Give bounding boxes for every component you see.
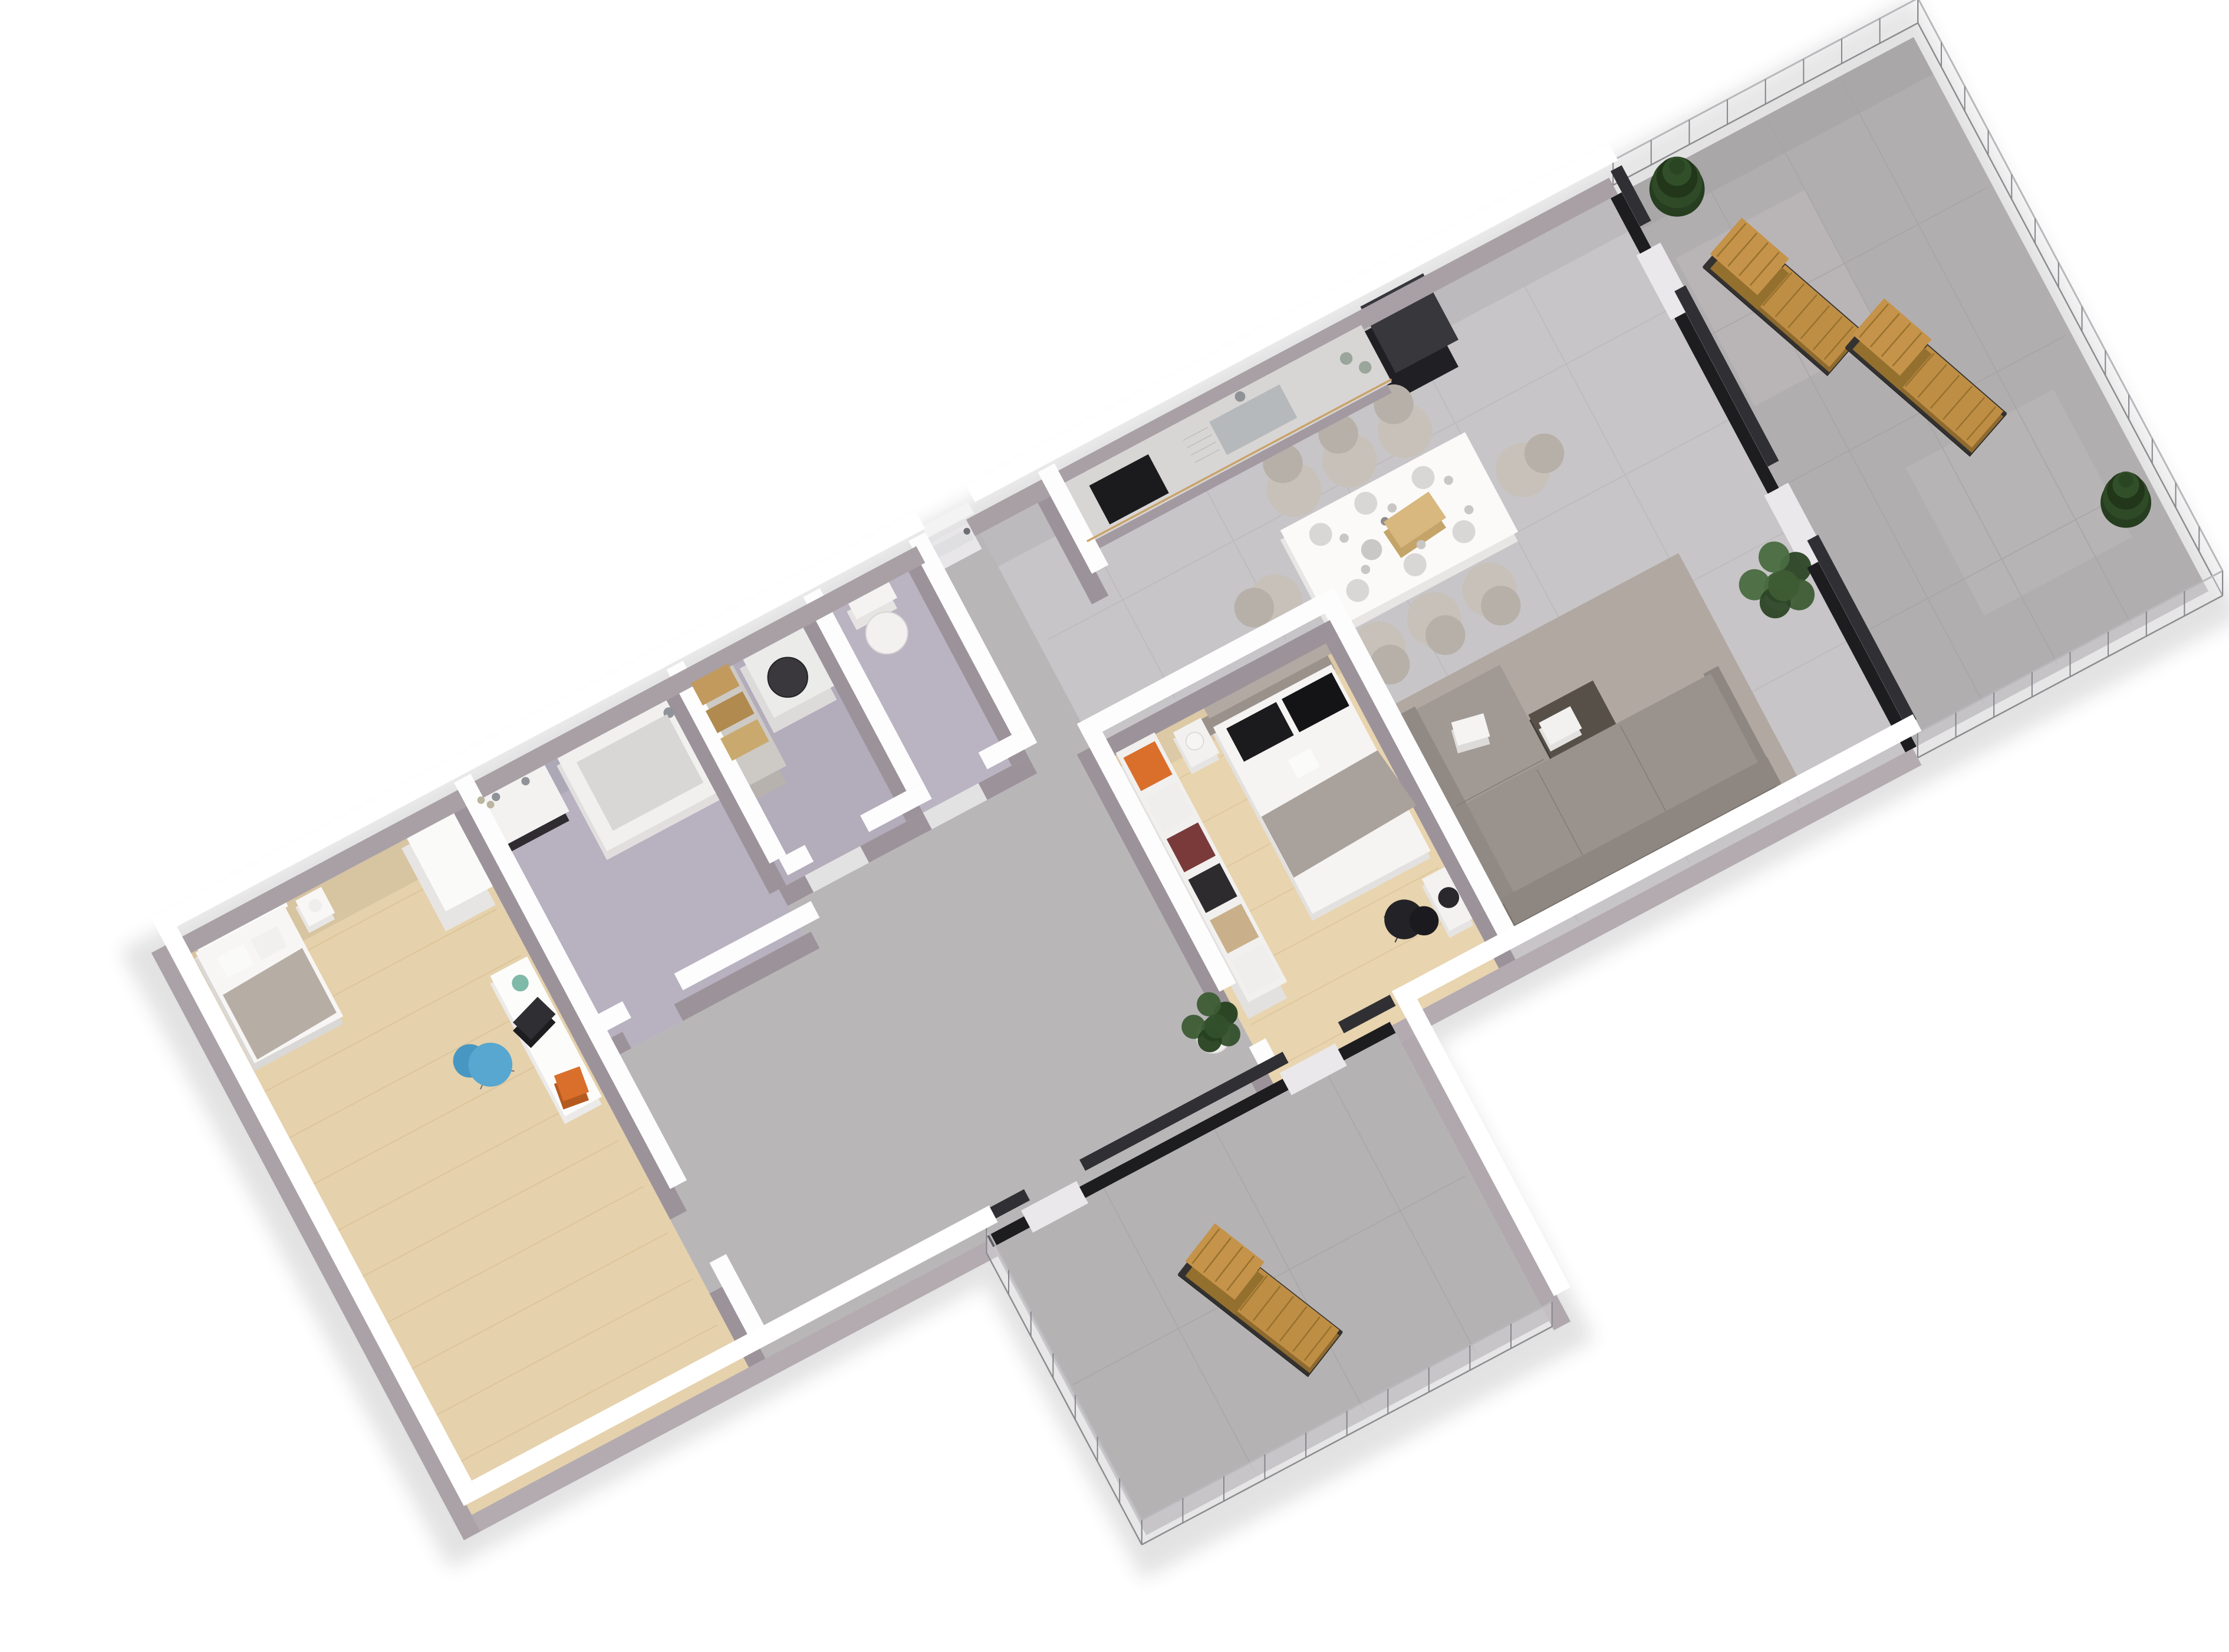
floor-plan-stage: [0, 0, 2229, 1652]
nightstand-lamp-bedroom-2: [308, 899, 322, 912]
dining-teapot: [1361, 539, 1382, 560]
apartment-3d-floor-plan: [0, 0, 2229, 1652]
master-nightstand-lamp: [1186, 733, 1204, 750]
desk-chair-blue-seat: [469, 1043, 513, 1087]
kitchen-faucet: [1235, 391, 1246, 402]
entry-door-handle: [963, 528, 970, 535]
washing-machine-door: [768, 658, 808, 697]
master-desk-chair-back: [1410, 906, 1439, 936]
master-speaker: [1438, 887, 1460, 908]
toilet-bowl: [866, 612, 908, 654]
desk-lamp: [512, 975, 528, 991]
